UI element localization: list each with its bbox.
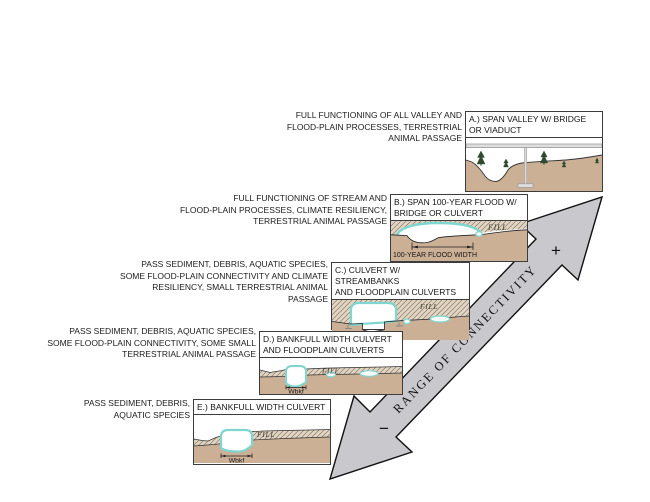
step-e-title: E.) BANKFULL WIDTH CULVERT	[194, 400, 330, 415]
step-a-box: A.) SPAN VALLEY W/ BRIDGE OR VIADUCT	[465, 111, 603, 192]
step-d-title: D.) BANKFULL WIDTH CULVERT AND FLOODPLAI…	[260, 332, 402, 358]
bankfull-width-label: Wbkf	[288, 389, 304, 395]
step-b-illustration: 100-YEAR FLOOD WIDTH FILL	[391, 221, 527, 261]
fill-label: FILL	[487, 223, 507, 232]
bridge-footing	[518, 184, 533, 188]
fill-label: FILL	[419, 302, 438, 311]
step-e-illustration: Wbkf FILL	[194, 415, 330, 463]
step-a-description: FULL FUNCTIONING OF ALL VALLEY AND FLOOD…	[287, 110, 462, 145]
step-c-description: PASS SEDIMENT, DEBRIS, AQUATIC SPECIES, …	[120, 259, 328, 305]
terrain	[466, 155, 602, 191]
step-a-title: A.) SPAN VALLEY W/ BRIDGE OR VIADUCT	[466, 112, 602, 138]
floodplain-culvert	[404, 319, 410, 324]
floodplain-culvert	[476, 232, 482, 237]
bridge-deck	[466, 144, 602, 148]
step-d-illustration: Wbkf FILL	[260, 358, 402, 394]
bridge-pier	[525, 148, 527, 185]
bankfull-width-label: Wbkf	[229, 458, 245, 464]
floodplain-culvert	[431, 316, 450, 322]
tree-icon	[540, 151, 547, 165]
tree-icon	[504, 159, 509, 167]
step-a-illustration	[466, 138, 602, 191]
step-b-title: B.) SPAN 100-YEAR FLOOD W/ BRIDGE OR CUL…	[391, 195, 527, 221]
step-b-description: FULL FUNCTIONING OF STREAM AND FLOOD-PLA…	[180, 193, 387, 228]
flood-width-label: 100-YEAR FLOOD WIDTH	[393, 252, 477, 259]
diagram-canvas: RANGE OF CONNECTIVITY + − FULL FUNCTIONI…	[0, 0, 650, 502]
floodplain-culvert	[360, 371, 378, 377]
step-e-description: PASS SEDIMENT, DEBRIS, AQUATIC SPECIES	[84, 398, 190, 421]
step-c-box: C.) CULVERT W/ STREAMBANKS AND FLOODPLAI…	[331, 262, 470, 330]
step-b-box: B.) SPAN 100-YEAR FLOOD W/ BRIDGE OR CUL…	[390, 194, 528, 262]
plus-sign: +	[551, 241, 561, 260]
fill-label: FILL	[256, 430, 275, 439]
step-c-title: C.) CULVERT W/ STREAMBANKS AND FLOODPLAI…	[332, 263, 469, 300]
step-d-description: PASS SEDIMENT, DEBRIS, AQUATIC SPECIES, …	[47, 326, 256, 361]
fill-label: FILL	[321, 368, 339, 376]
tree-icon	[477, 151, 485, 166]
step-d-box: D.) BANKFULL WIDTH CULVERT AND FLOODPLAI…	[259, 331, 403, 395]
culvert-opening	[221, 430, 252, 452]
culvert-opening	[286, 366, 306, 387]
minus-sign: −	[379, 419, 389, 438]
step-e-box: E.) BANKFULL WIDTH CULVERT Wbkf FILL	[193, 399, 331, 465]
